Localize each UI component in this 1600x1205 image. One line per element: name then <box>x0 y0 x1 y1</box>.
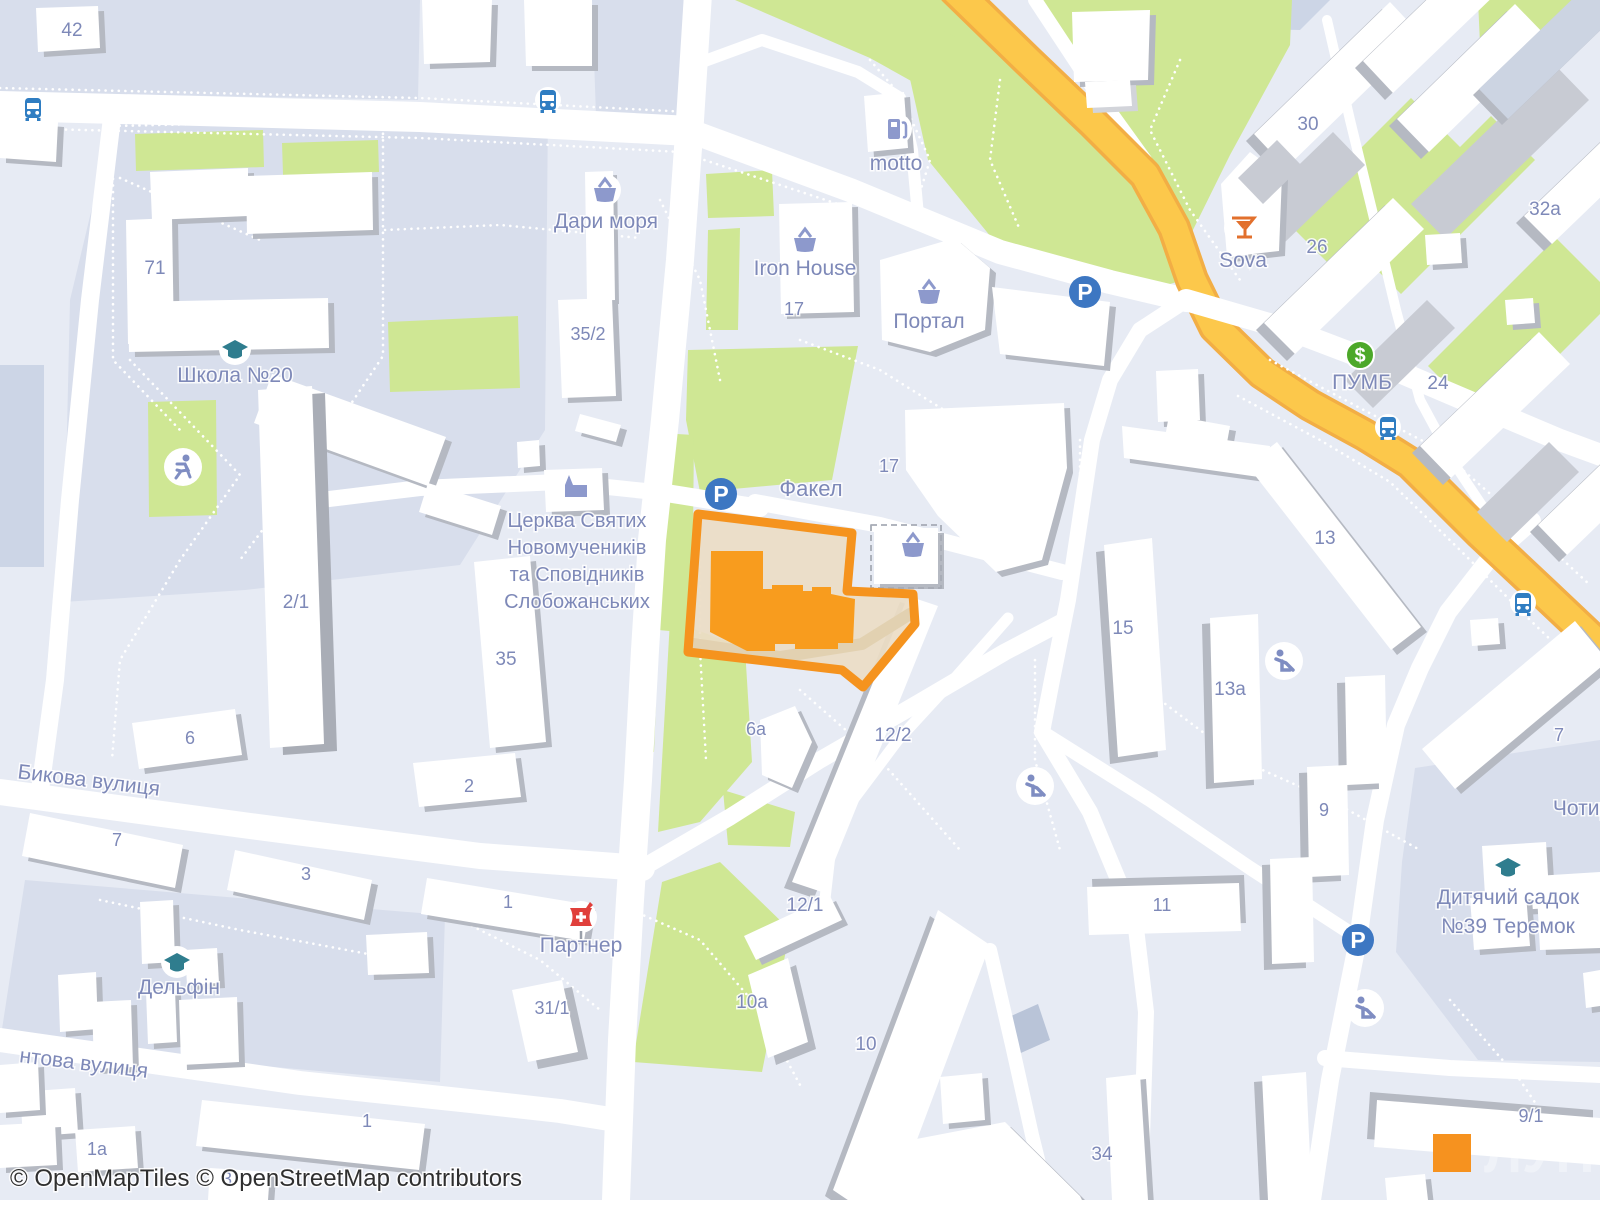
svg-text:12/2: 12/2 <box>875 725 912 746</box>
svg-text:35/2: 35/2 <box>570 324 605 344</box>
svg-text:Дельфін: Дельфін <box>138 976 220 999</box>
svg-text:1а: 1а <box>87 1139 108 1159</box>
svg-text:30: 30 <box>1297 114 1318 135</box>
svg-text:Iron House: Iron House <box>754 257 857 280</box>
svg-text:15: 15 <box>1112 618 1133 639</box>
svg-text:26: 26 <box>1306 237 1327 258</box>
svg-text:10: 10 <box>855 1034 876 1055</box>
svg-text:P: P <box>1077 279 1092 305</box>
svg-text:13а: 13а <box>1214 679 1246 700</box>
svg-text:$: $ <box>1354 345 1365 367</box>
svg-text:11: 11 <box>1153 895 1172 915</box>
svg-text:2: 2 <box>464 776 474 796</box>
svg-text:© OpenMapTiles © OpenStreetMap: © OpenMapTiles © OpenStreetMap contribut… <box>10 1165 522 1192</box>
svg-text:7: 7 <box>112 830 122 850</box>
svg-text:9: 9 <box>1319 800 1329 820</box>
svg-text:7: 7 <box>1554 725 1564 745</box>
svg-text:Слобожанських: Слобожанських <box>504 591 650 613</box>
svg-text:31/1: 31/1 <box>534 998 569 1018</box>
svg-text:17: 17 <box>879 456 899 476</box>
svg-text:Партнер: Партнер <box>540 934 623 957</box>
svg-text:Sova: Sova <box>1219 249 1267 272</box>
svg-text:Факел: Факел <box>779 476 842 501</box>
svg-text:1: 1 <box>503 892 513 912</box>
svg-text:ПУМБ: ПУМБ <box>1332 371 1392 394</box>
svg-text:ЛУН: ЛУН <box>1484 1124 1594 1184</box>
svg-text:17: 17 <box>784 299 804 319</box>
svg-text:42: 42 <box>61 20 82 41</box>
svg-text:Портал: Портал <box>893 310 964 333</box>
svg-text:№39 Теремок: №39 Теремок <box>1441 915 1576 938</box>
svg-text:24: 24 <box>1427 373 1449 394</box>
svg-text:P: P <box>713 481 728 507</box>
svg-text:та Сповідників: та Сповідників <box>510 564 645 586</box>
svg-text:P: P <box>1350 927 1365 953</box>
svg-text:34: 34 <box>1091 1144 1113 1165</box>
svg-text:Новомучеників: Новомучеників <box>508 537 647 559</box>
svg-text:Дари моря: Дари моря <box>554 210 658 233</box>
svg-text:1: 1 <box>362 1111 372 1131</box>
svg-text:Школа №20: Школа №20 <box>177 364 293 387</box>
svg-text:Чотир: Чотир <box>1553 797 1600 820</box>
svg-text:13: 13 <box>1314 528 1335 549</box>
svg-text:motto: motto <box>870 152 923 175</box>
svg-text:2/1: 2/1 <box>283 592 309 613</box>
svg-text:71: 71 <box>144 258 165 279</box>
svg-text:Церква Святих: Церква Святих <box>508 510 647 532</box>
svg-text:12/1: 12/1 <box>787 895 824 916</box>
svg-text:32а: 32а <box>1529 199 1561 220</box>
svg-text:6а: 6а <box>746 719 767 739</box>
svg-text:10а: 10а <box>736 992 768 1013</box>
svg-text:6: 6 <box>185 728 195 748</box>
svg-text:Дитячий садок: Дитячий садок <box>1437 886 1580 909</box>
svg-text:9/1: 9/1 <box>1518 1106 1543 1126</box>
svg-text:3: 3 <box>301 864 311 884</box>
svg-text:35: 35 <box>495 649 516 670</box>
